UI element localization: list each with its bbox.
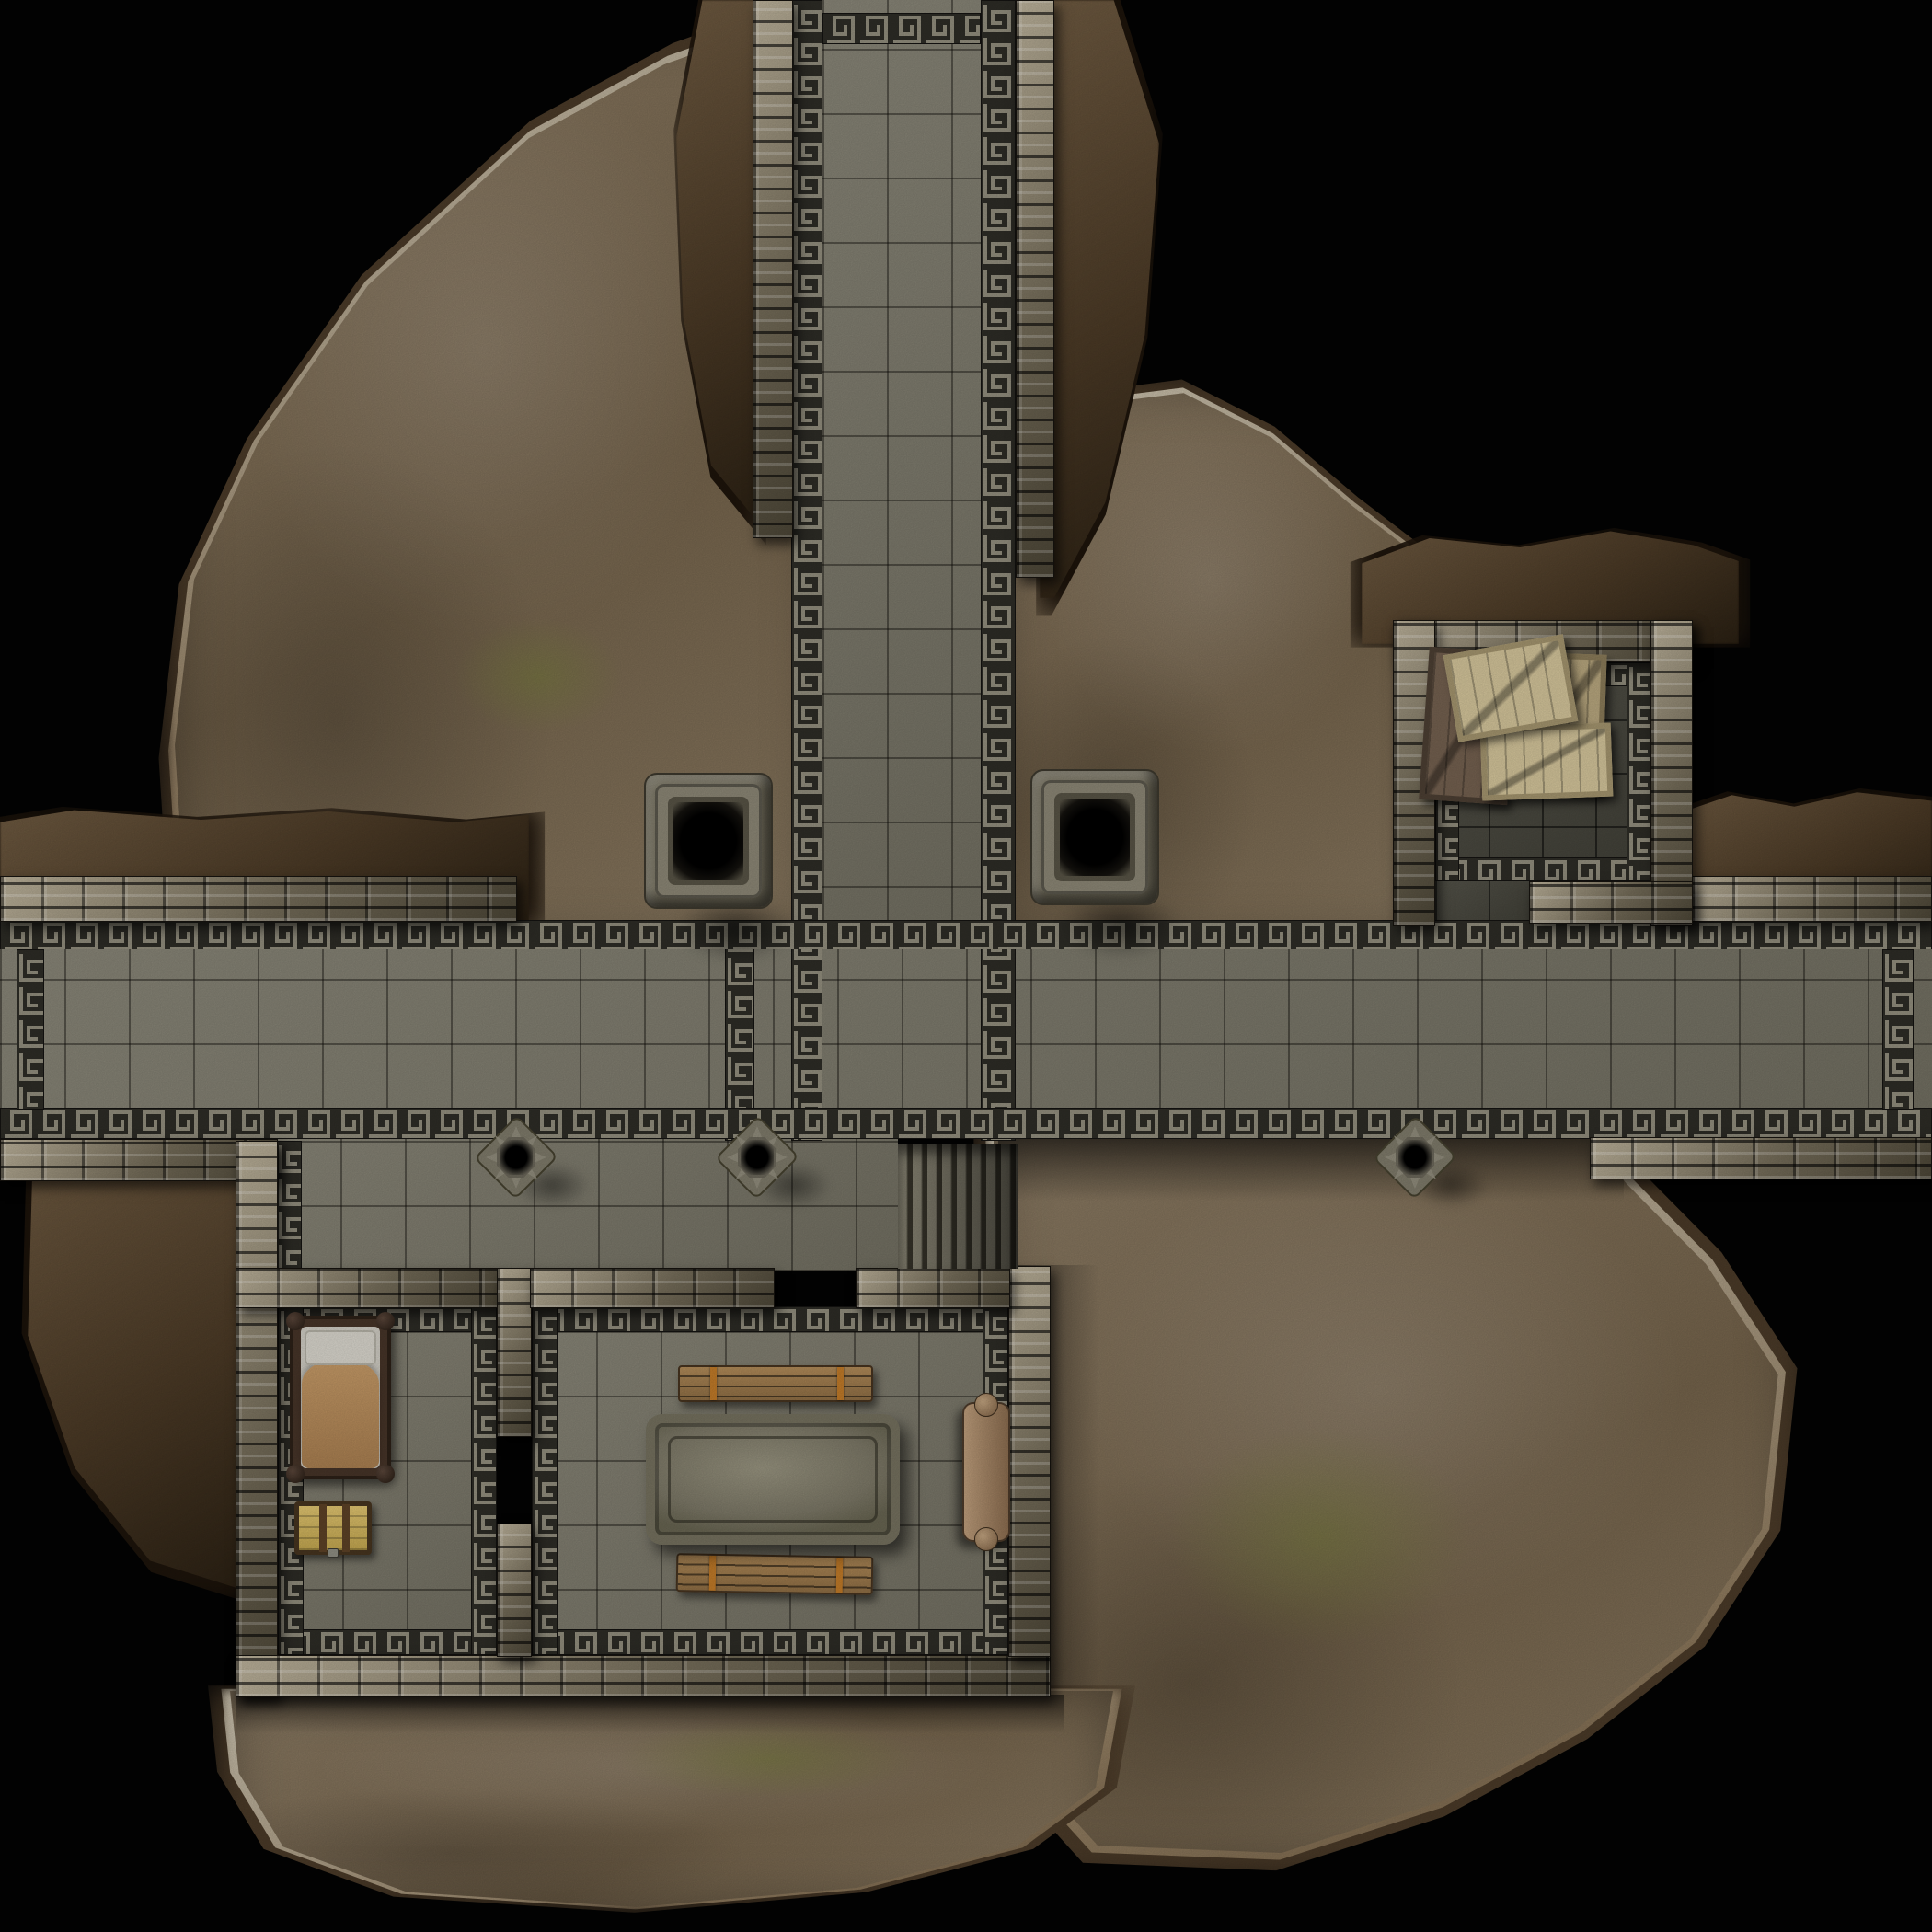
stairs-to-cavern xyxy=(898,1144,1018,1269)
stone-table xyxy=(646,1414,900,1545)
rooms-wall-south xyxy=(236,1655,1051,1697)
storeroom-door-floor xyxy=(1435,881,1529,926)
greek-key-pattern xyxy=(1883,950,1913,1109)
hall-border-north xyxy=(0,920,1932,949)
brazier-pillar-west-core xyxy=(673,802,743,880)
side-bench xyxy=(962,1402,1010,1542)
greek-key-pattern xyxy=(17,950,43,1109)
brazier-pillar-west xyxy=(644,773,773,909)
anteroom-border-west xyxy=(276,1141,302,1271)
star-pillar-west-core xyxy=(500,1140,533,1175)
greek-key-pattern xyxy=(1,921,1931,949)
side-bench-knob-bottom xyxy=(974,1527,998,1551)
great-room-border-west xyxy=(532,1306,558,1655)
corridor-border-east xyxy=(981,0,1016,1141)
great-room-border-south xyxy=(532,1629,1008,1655)
moss-patch-west xyxy=(419,593,658,759)
storeroom-border-south xyxy=(1435,857,1650,881)
rooms-wall-east xyxy=(1008,1266,1051,1657)
storeroom-wall-south xyxy=(1529,881,1693,924)
side-bench-knob-top xyxy=(974,1393,998,1417)
hall-wall-south-east xyxy=(1590,1137,1932,1179)
bench-strap-left xyxy=(710,1367,717,1400)
hall-border-south xyxy=(0,1108,1932,1139)
greek-key-pattern xyxy=(1,1109,1931,1138)
hall-border-end-west xyxy=(17,949,44,1110)
corridor-border-top-cap xyxy=(822,13,981,44)
corridor-wall-east xyxy=(1016,0,1054,578)
brazier-pillar-east xyxy=(1030,769,1159,905)
chest-clasp xyxy=(328,1548,339,1558)
chest-strap-left xyxy=(319,1504,327,1552)
great-room-border-north xyxy=(532,1306,1008,1332)
bench-north xyxy=(678,1365,873,1402)
brazier-pillar-east-core xyxy=(1060,799,1130,876)
greek-key-pattern xyxy=(533,1630,1007,1654)
bed xyxy=(290,1316,391,1479)
storeroom-border-east xyxy=(1627,662,1650,881)
bedroom-wall-north xyxy=(236,1268,499,1308)
rooms-wall-west xyxy=(236,1141,278,1697)
divider-wall-north xyxy=(497,1268,532,1437)
bed-pillow xyxy=(305,1330,376,1365)
bench-strap-right xyxy=(837,1367,844,1400)
greek-key-pattern xyxy=(279,1630,496,1654)
star-pillar-east-core xyxy=(1398,1140,1432,1175)
crate-planks xyxy=(1486,729,1607,795)
star-pillar-mid-core xyxy=(741,1140,774,1175)
greek-key-pattern xyxy=(823,14,980,43)
bed-post-2 xyxy=(286,1465,305,1483)
horizontal-corridor-floor xyxy=(0,949,1932,1110)
greek-key-pattern xyxy=(1627,663,1650,880)
greek-key-pattern xyxy=(277,1142,301,1271)
greek-key-pattern xyxy=(792,1,822,1140)
bed-blanket xyxy=(302,1360,379,1468)
hall-border-end-east xyxy=(1882,949,1914,1110)
star-pillar-east xyxy=(1381,1122,1449,1192)
corridor-wall-west xyxy=(753,0,793,538)
star-pillar-west xyxy=(482,1122,550,1192)
bench-strap-left xyxy=(708,1556,716,1591)
dresser-chest xyxy=(294,1501,372,1555)
rock-pocket-west-floor xyxy=(14,1150,248,1592)
table-carved-inset xyxy=(668,1436,878,1523)
bed-post-3 xyxy=(376,1465,395,1483)
storeroom-wall-east xyxy=(1650,620,1693,926)
divider-wall-south xyxy=(497,1524,532,1657)
bedroom-border-east xyxy=(471,1306,497,1655)
greek-key-pattern xyxy=(533,1307,557,1654)
star-pillar-mid xyxy=(723,1122,791,1192)
bench-south xyxy=(676,1553,874,1595)
moss-patch-cavern xyxy=(1104,1380,1536,1693)
chest-strap-right xyxy=(342,1504,350,1552)
dungeon-map xyxy=(0,0,1932,1932)
great-room-wall-north-east xyxy=(856,1268,1010,1308)
moss-patch-south xyxy=(552,1704,984,1814)
great-room-wall-north-west xyxy=(530,1268,775,1308)
bed-post-1 xyxy=(376,1312,395,1330)
hall-wall-north-east xyxy=(1691,876,1932,922)
hall-wall-north-west xyxy=(0,876,517,922)
bench-strap-right xyxy=(836,1558,844,1593)
corridor-border-west xyxy=(791,0,822,1141)
bedroom-border-south xyxy=(278,1629,497,1655)
vertical-corridor-floor xyxy=(822,0,981,952)
crate-planks xyxy=(1450,640,1572,736)
bed-post-0 xyxy=(286,1312,305,1330)
greek-key-pattern xyxy=(533,1307,1007,1331)
greek-key-pattern xyxy=(472,1307,496,1654)
greek-key-pattern xyxy=(1436,858,1650,880)
greek-key-pattern xyxy=(982,1,1015,1140)
